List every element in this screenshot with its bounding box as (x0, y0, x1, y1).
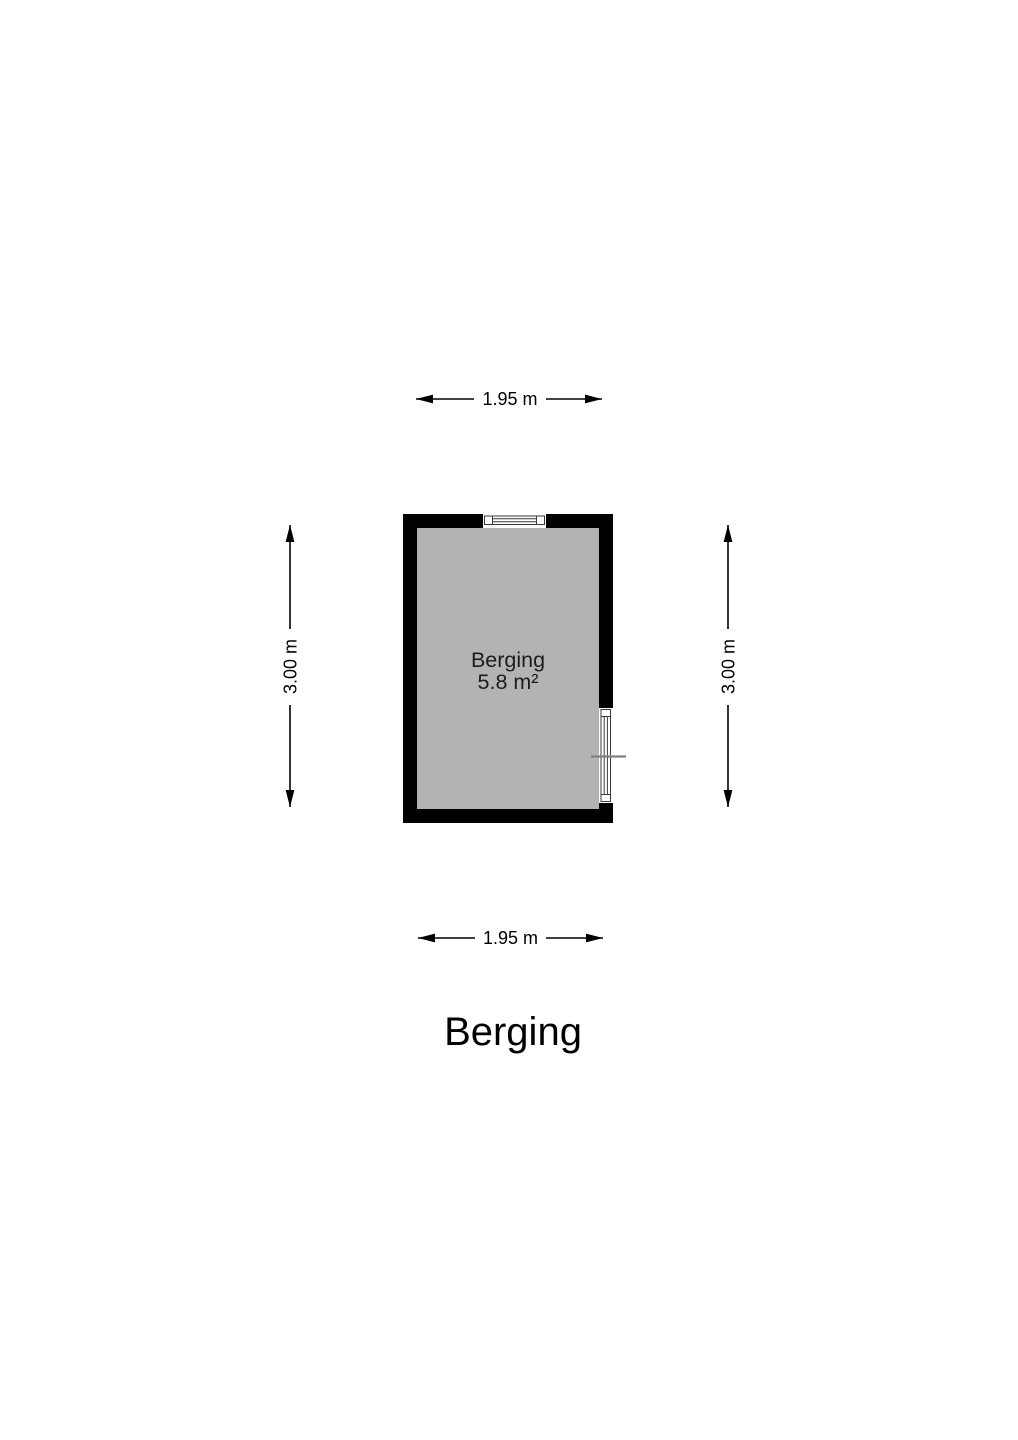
arrow-up-icon (724, 525, 733, 542)
window-top (483, 514, 546, 528)
dimension-left-label: 3.00 m (281, 639, 301, 694)
arrow-down-icon (724, 790, 733, 807)
room-area-label: 5.8 m² (478, 670, 539, 694)
arrow-left-icon (418, 934, 435, 943)
arrow-up-icon (286, 525, 295, 542)
floorplan-canvas: 1.95 m Berging 5.8 (0, 0, 1018, 1440)
dimension-top-label: 1.95 m (482, 389, 537, 409)
dimension-right-label: 3.00 m (719, 639, 739, 694)
dimension-left: 3.00 m (279, 525, 301, 807)
dimension-top: 1.95 m (416, 388, 602, 409)
arrow-right-icon (586, 934, 603, 943)
dimension-right: 3.00 m (717, 525, 739, 807)
dimension-bottom-label: 1.95 m (483, 928, 538, 948)
plan-title: Berging (444, 1010, 582, 1054)
arrow-left-icon (416, 395, 433, 404)
arrow-down-icon (286, 790, 295, 807)
room-name-label: Berging (471, 648, 545, 672)
dimension-bottom: 1.95 m (418, 927, 603, 948)
arrow-right-icon (585, 395, 602, 404)
floorplan-drawing: 1.95 m Berging 5.8 (0, 0, 1018, 1440)
room-label-group: Berging 5.8 m² (471, 648, 545, 694)
